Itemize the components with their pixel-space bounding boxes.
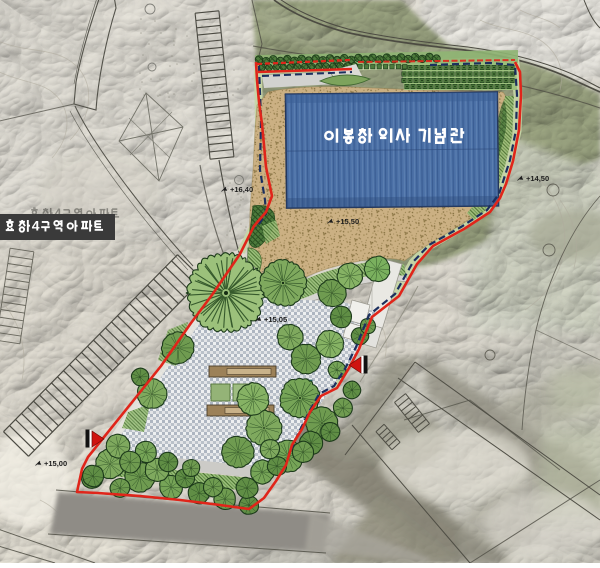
svg-text:+14,50: +14,50 — [526, 174, 549, 183]
svg-text:+15,05: +15,05 — [264, 315, 287, 324]
svg-text:+15,00: +15,00 — [44, 459, 67, 468]
svg-text:4: 4 — [32, 218, 40, 234]
svg-text:+16,40: +16,40 — [230, 185, 253, 194]
svg-text:+15,50: +15,50 — [336, 217, 359, 226]
